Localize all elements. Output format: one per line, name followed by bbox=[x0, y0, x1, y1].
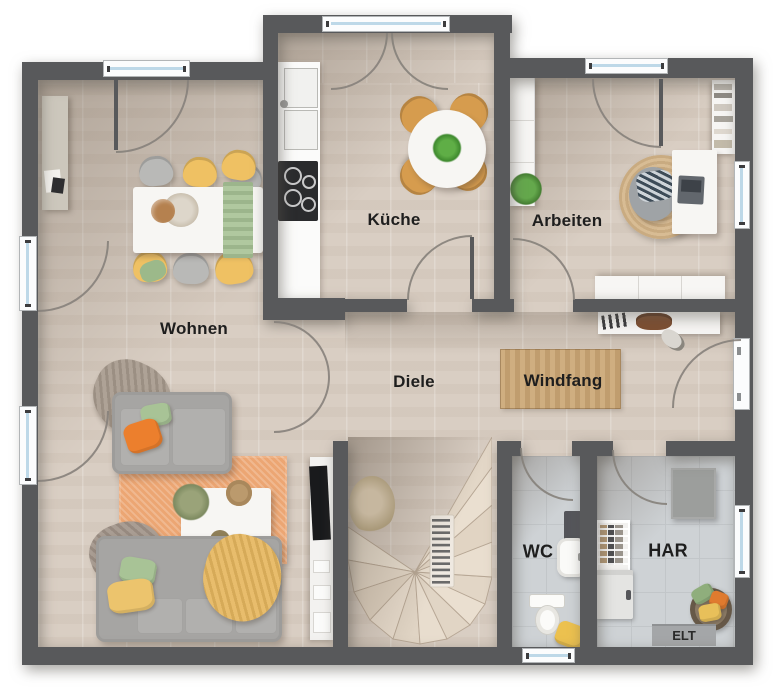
wall-bottom bbox=[22, 647, 753, 665]
window-kueche-top bbox=[322, 16, 450, 32]
storage-box bbox=[671, 468, 716, 519]
wall-south-kueche-a bbox=[263, 298, 345, 320]
front-door-leaf bbox=[733, 338, 750, 410]
drying-rack bbox=[596, 520, 630, 572]
room-label-diele: Diele bbox=[393, 372, 435, 392]
tv-screen bbox=[309, 466, 331, 541]
wall-south-kueche-b bbox=[345, 299, 407, 312]
office-plant bbox=[510, 172, 542, 206]
room-label-arbeiten: Arbeiten bbox=[532, 211, 603, 231]
window-wc-bottom bbox=[522, 648, 575, 663]
floor-plan: ELT bbox=[0, 0, 775, 688]
kitchen-faucet bbox=[280, 100, 288, 108]
coffee-table-plant bbox=[172, 483, 210, 521]
wall-stairs-west bbox=[333, 441, 348, 647]
dried-grass-plant bbox=[349, 476, 395, 534]
room-label-wohnen: Wohnen bbox=[160, 319, 228, 339]
kitchen-sink bbox=[284, 68, 318, 108]
wall-wc-har bbox=[580, 441, 597, 647]
dining-chair bbox=[172, 252, 209, 284]
brown-bag bbox=[636, 313, 672, 330]
room-label-windfang: Windfang bbox=[524, 371, 603, 391]
wall-wc-top-a bbox=[497, 441, 521, 456]
office-chair-cushion bbox=[635, 169, 675, 204]
wall-left bbox=[22, 62, 38, 665]
deco-bowl bbox=[226, 480, 252, 506]
tv-deco-speaker bbox=[313, 585, 331, 600]
elt-panel: ELT bbox=[652, 624, 716, 646]
window-arbeiten-top bbox=[585, 58, 668, 74]
dining-chair bbox=[182, 156, 218, 188]
wall-har-top-a bbox=[597, 441, 613, 456]
wall-har-top-b bbox=[666, 441, 753, 456]
room-label-har: HAR bbox=[648, 541, 688, 562]
tv-deco-box bbox=[313, 612, 331, 633]
wall-wc-left bbox=[497, 441, 512, 647]
wall-kueche-left bbox=[263, 15, 278, 320]
window-wohnen-top bbox=[103, 60, 190, 77]
window-har-right bbox=[734, 505, 750, 578]
kitchen-sink-2 bbox=[284, 110, 318, 150]
table-runner bbox=[223, 182, 253, 258]
laptop bbox=[677, 175, 704, 204]
room-label-wc: WC bbox=[523, 542, 553, 563]
washing-machine bbox=[596, 570, 633, 619]
elt-label: ELT bbox=[672, 628, 696, 643]
sideboard-black-box bbox=[51, 177, 65, 194]
window-arbeiten-right bbox=[734, 161, 750, 229]
kitchen-table-plant bbox=[432, 133, 462, 163]
room-label-kueche: Küche bbox=[368, 210, 421, 230]
bookshelf bbox=[712, 80, 735, 154]
copper-bowl bbox=[151, 199, 175, 223]
window-wohnen-left-1 bbox=[19, 236, 37, 311]
tv-deco-books bbox=[313, 560, 330, 573]
cooktop bbox=[278, 161, 318, 221]
wall-south-arbeiten bbox=[573, 299, 753, 312]
window-wohnen-left-2 bbox=[19, 406, 37, 485]
wall-south-kueche-c bbox=[472, 299, 514, 312]
tall-sideboard bbox=[42, 96, 68, 210]
